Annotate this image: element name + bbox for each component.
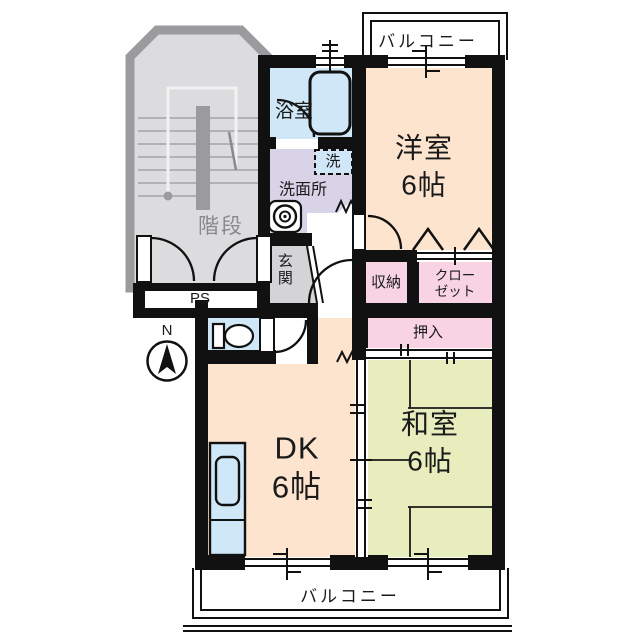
kitchen-counter	[210, 443, 245, 555]
western-room-size: 6帖	[401, 170, 447, 199]
floorplan-drawing	[0, 0, 640, 640]
closet-label-line2: ゼット	[435, 285, 476, 299]
entrance-label: 玄関	[276, 253, 292, 287]
washroom-label: 洗面所	[279, 183, 327, 200]
closet-label-line1: クロー	[435, 269, 476, 283]
dk-name: DK	[274, 433, 319, 466]
pipe-space-label: PS	[190, 291, 210, 307]
balcony-top-label: バルコニー	[378, 33, 478, 51]
floorplan-canvas: バルコニー 洋室 6帖 浴室 洗 洗面所 階段 PS 玄関 収納 クロー ゼット…	[0, 0, 640, 640]
bathtub	[310, 72, 350, 134]
entrance-door-leaf	[257, 236, 271, 282]
balcony-bottom-label: バルコニー	[300, 588, 400, 606]
compass-icon	[148, 342, 187, 381]
western-room-door-leaf	[353, 214, 365, 250]
japanese-room-name: 和室	[401, 409, 459, 438]
bathroom-label: 浴室	[275, 102, 313, 122]
dk-size: 6帖	[272, 472, 322, 505]
storage-label: 収納	[371, 275, 401, 291]
toilet-fixture	[213, 324, 253, 348]
stairhall-left-door-leaf	[137, 236, 151, 282]
toilet-door-leaf	[260, 318, 274, 352]
stair-center-rail	[196, 106, 210, 210]
japanese-room-size: 6帖	[407, 446, 453, 475]
futon-closet-label: 押入	[413, 325, 443, 341]
washbasin-fixture	[269, 201, 301, 232]
stairs-label: 階段	[198, 216, 244, 238]
compass-north-label: N	[162, 323, 173, 339]
washing-machine-label: 洗	[325, 154, 340, 170]
western-room-name: 洋室	[395, 133, 453, 162]
